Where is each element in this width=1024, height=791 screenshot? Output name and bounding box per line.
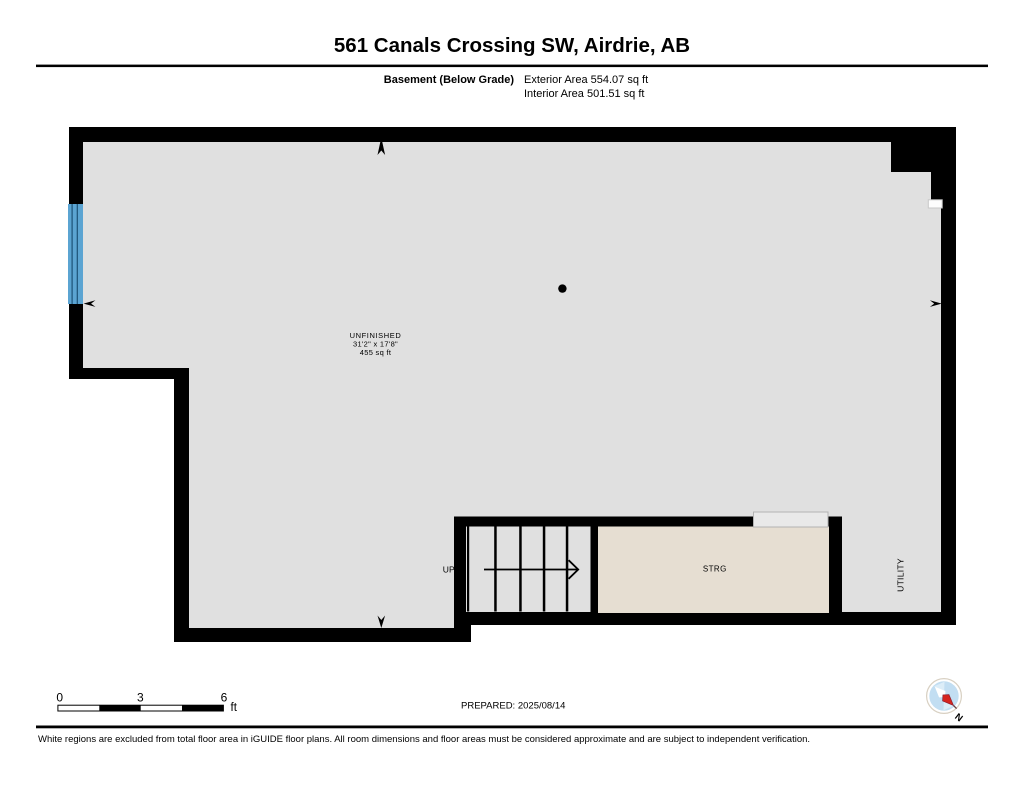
svg-text:6: 6 xyxy=(221,691,228,705)
svg-text:455 sq ft: 455 sq ft xyxy=(360,348,392,357)
svg-text:STRG: STRG xyxy=(703,564,727,573)
svg-text:561 Canals Crossing SW, Airdri: 561 Canals Crossing SW, Airdrie, AB xyxy=(334,34,690,57)
svg-text:0: 0 xyxy=(56,691,63,705)
svg-text:White regions are excluded fro: White regions are excluded from total fl… xyxy=(38,734,810,745)
svg-text:PREPARED: 2025/08/14: PREPARED: 2025/08/14 xyxy=(461,701,565,712)
svg-text:N: N xyxy=(952,711,964,724)
svg-text:ft: ft xyxy=(231,702,238,714)
svg-text:UTILITY: UTILITY xyxy=(896,558,906,592)
svg-text:Exterior Area 554.07 sq ft: Exterior Area 554.07 sq ft xyxy=(524,74,648,86)
svg-text:3: 3 xyxy=(137,691,144,705)
svg-text:Interior Area 501.51 sq ft: Interior Area 501.51 sq ft xyxy=(524,88,644,100)
svg-text:UP: UP xyxy=(443,565,455,575)
svg-text:Basement (Below Grade): Basement (Below Grade) xyxy=(384,74,515,86)
